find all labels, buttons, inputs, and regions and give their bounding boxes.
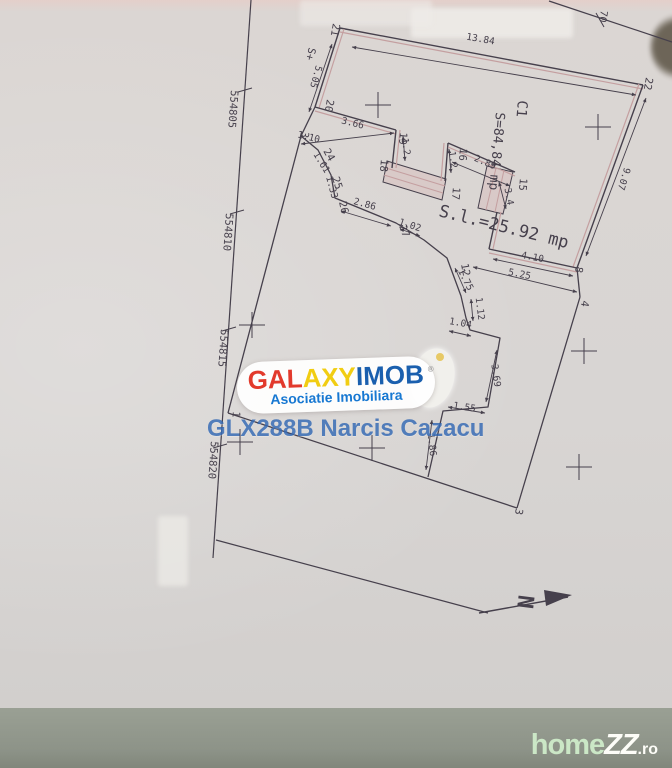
dimension-label: 1.12	[473, 297, 487, 321]
agent-code-watermark: GLX288B Narcis Cazacu	[207, 415, 484, 443]
boundary-east-lower	[517, 297, 580, 508]
dimension-label: 1.55	[452, 400, 476, 414]
dimension-label: 5.25	[507, 267, 532, 282]
dim-arrowhead	[569, 273, 573, 277]
plan-label: 16	[456, 148, 469, 162]
north-arrow-head	[544, 590, 572, 606]
dim-arrowhead	[643, 98, 646, 102]
plan-label: 554805	[225, 90, 240, 129]
plan-label: 20	[322, 98, 336, 113]
logo-part-gal: GAL	[247, 363, 303, 395]
plan-label: S+	[303, 46, 318, 61]
dim-arrowhead	[352, 46, 356, 50]
wall-17-16-offset	[441, 143, 444, 181]
dimension-label: 3.66	[340, 115, 365, 131]
dimension-label: 1.04	[448, 316, 473, 331]
dim-arrowhead	[485, 398, 489, 402]
plan-label: 19	[396, 132, 409, 146]
dim-arrowhead	[309, 108, 312, 112]
dimension-line	[586, 98, 646, 256]
homezz-watermark-strip: homeZZ.ro	[0, 708, 672, 768]
plan-label: 3	[512, 507, 525, 515]
boundary-bottom-branch	[216, 540, 488, 613]
plan-label: 26	[336, 200, 350, 215]
plan-label: 17	[449, 187, 462, 201]
dimension-label: 13.84	[465, 32, 495, 48]
north-label: N	[511, 594, 537, 610]
wall-22-8	[577, 85, 643, 268]
galaxyimob-logo: GALAXYIMOB ®	[247, 362, 424, 392]
dim-arrowhead	[467, 333, 471, 337]
dim-arrowhead	[449, 330, 453, 334]
dim-arrowhead	[403, 157, 407, 161]
dimension-line	[352, 47, 636, 95]
plan-label: 18	[377, 159, 390, 173]
dimension-label: 3.69	[488, 364, 502, 388]
dim-arrowhead	[387, 223, 391, 227]
logo-part-imob: IMOB	[355, 359, 424, 391]
plan-label: 8	[572, 265, 585, 273]
homezz-logo-zz: ZZ	[604, 729, 637, 761]
scanned-plan-paper: 13.845.059.073.661.102.861.611.331.021.7…	[0, 0, 672, 768]
galaxyimob-watermark: GALAXYIMOB ® Asociatie Imobiliara	[236, 356, 436, 415]
dimension-label: 9.07	[615, 166, 632, 191]
plan-label: 21	[328, 22, 342, 37]
plan-label: 22	[641, 76, 655, 91]
dimension-label: 4.10	[520, 250, 545, 265]
grid-line-left	[213, 0, 251, 558]
homezz-logo-ro: .ro	[638, 741, 658, 758]
dim-arrowhead	[329, 44, 332, 48]
registered-mark-icon: ®	[427, 358, 434, 382]
homezz-logo-home: home	[531, 729, 604, 761]
plan-label: C1	[513, 100, 530, 118]
plan-label: 554815	[215, 329, 230, 368]
plan-label: 15	[516, 178, 529, 192]
homezz-logo: homeZZ.ro	[531, 730, 658, 765]
dim-arrowhead	[493, 258, 497, 262]
plan-label: 4	[578, 299, 591, 307]
logo-part-axy: AXY	[302, 361, 356, 393]
wall-19-18	[392, 130, 396, 168]
grid-line-topright	[549, 1, 672, 42]
plan-label: 12	[458, 262, 472, 277]
dim-arrowhead	[586, 252, 589, 256]
plan-label: 554810	[220, 213, 235, 252]
dim-arrowhead	[449, 169, 453, 173]
dim-arrowhead	[481, 411, 485, 415]
listing-photo: 13.845.059.073.661.102.861.611.331.021.7…	[0, 0, 672, 768]
